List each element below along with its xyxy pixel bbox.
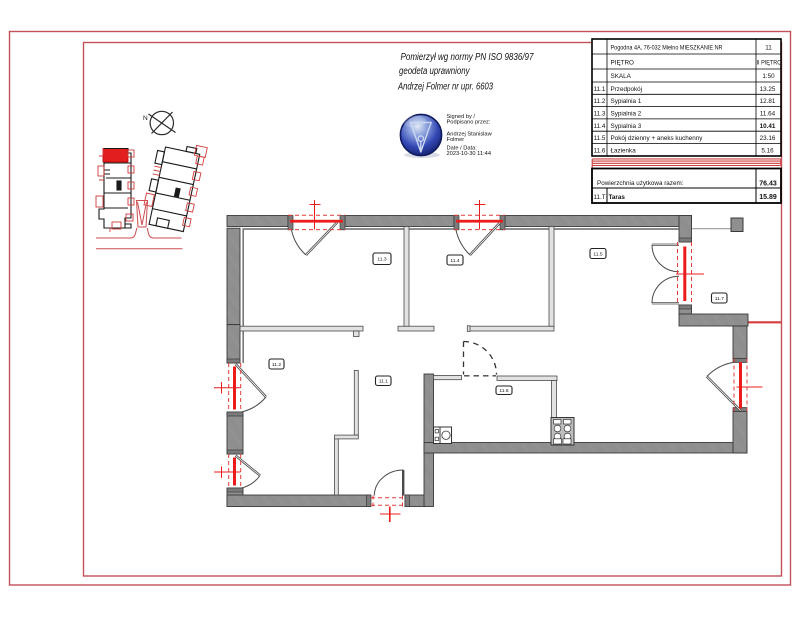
svg-text:11: 11: [765, 44, 772, 51]
svg-text:5.16: 5.16: [761, 148, 774, 155]
svg-text:Podpisano przez:: Podpisano przez:: [447, 120, 491, 126]
svg-text:Folmer: Folmer: [447, 137, 465, 143]
svg-text:Sypialnia 1: Sypialnia 1: [611, 98, 642, 105]
svg-text:1:50: 1:50: [762, 73, 775, 80]
svg-text:11.1: 11.1: [379, 379, 388, 385]
svg-text:11.6: 11.6: [499, 388, 508, 394]
svg-text:PIĘTRO: PIĘTRO: [611, 59, 635, 66]
svg-text:11.2: 11.2: [272, 362, 281, 368]
svg-text:Sypialnia 3: Sypialnia 3: [611, 123, 642, 130]
svg-text:11.1: 11.1: [594, 86, 606, 93]
svg-text:2023-10-30 11:44: 2023-10-30 11:44: [447, 151, 491, 157]
svg-text:Pokój dzienny + aneks kuchenny: Pokój dzienny + aneks kuchenny: [611, 135, 704, 142]
svg-text:Łazienka: Łazienka: [611, 148, 637, 155]
svg-text:SKALA: SKALA: [611, 73, 632, 80]
svg-text:11.5: 11.5: [593, 252, 602, 258]
svg-text:11.4: 11.4: [594, 123, 606, 130]
svg-text:II PIĘTRO: II PIĘTRO: [757, 59, 782, 66]
svg-text:Andrzej Folmer nr upr. 6603: Andrzej Folmer nr upr. 6603: [397, 82, 493, 93]
svg-text:Przedpokój: Przedpokój: [611, 86, 643, 93]
svg-text:Pomierzył wg normy PN ISO 983: Pomierzył wg normy PN ISO 9836/97: [401, 52, 534, 63]
svg-text:11.2: 11.2: [594, 98, 606, 105]
svg-text:N: N: [143, 115, 148, 122]
svg-text:76.43: 76.43: [759, 181, 777, 188]
svg-text:11.3: 11.3: [594, 111, 606, 118]
svg-text:15.89: 15.89: [759, 194, 777, 201]
svg-text:11.3: 11.3: [377, 257, 386, 263]
svg-text:Pogodna 4A, 76-032 Mielno MIES: Pogodna 4A, 76-032 Mielno MIESZKANIE NR: [611, 44, 723, 51]
svg-text:11.64: 11.64: [760, 111, 776, 118]
svg-text:11.6: 11.6: [594, 148, 606, 155]
svg-text:11.7: 11.7: [715, 296, 724, 302]
svg-text:Taras: Taras: [609, 194, 626, 201]
svg-text:12.81: 12.81: [760, 98, 776, 105]
svg-text:10.41: 10.41: [760, 123, 776, 130]
svg-text:Powierzchnia użytkowa razem:: Powierzchnia użytkowa razem:: [597, 180, 684, 187]
svg-text:11.5: 11.5: [594, 135, 606, 142]
svg-text:Sypialnia 2: Sypialnia 2: [611, 111, 642, 118]
svg-text:13.25: 13.25: [760, 86, 776, 93]
svg-text:23.16: 23.16: [760, 135, 776, 142]
svg-text:geodeta uprawniony: geodeta uprawniony: [399, 66, 470, 77]
svg-text:11.T: 11.T: [594, 194, 606, 201]
svg-text:11.4: 11.4: [450, 258, 459, 264]
